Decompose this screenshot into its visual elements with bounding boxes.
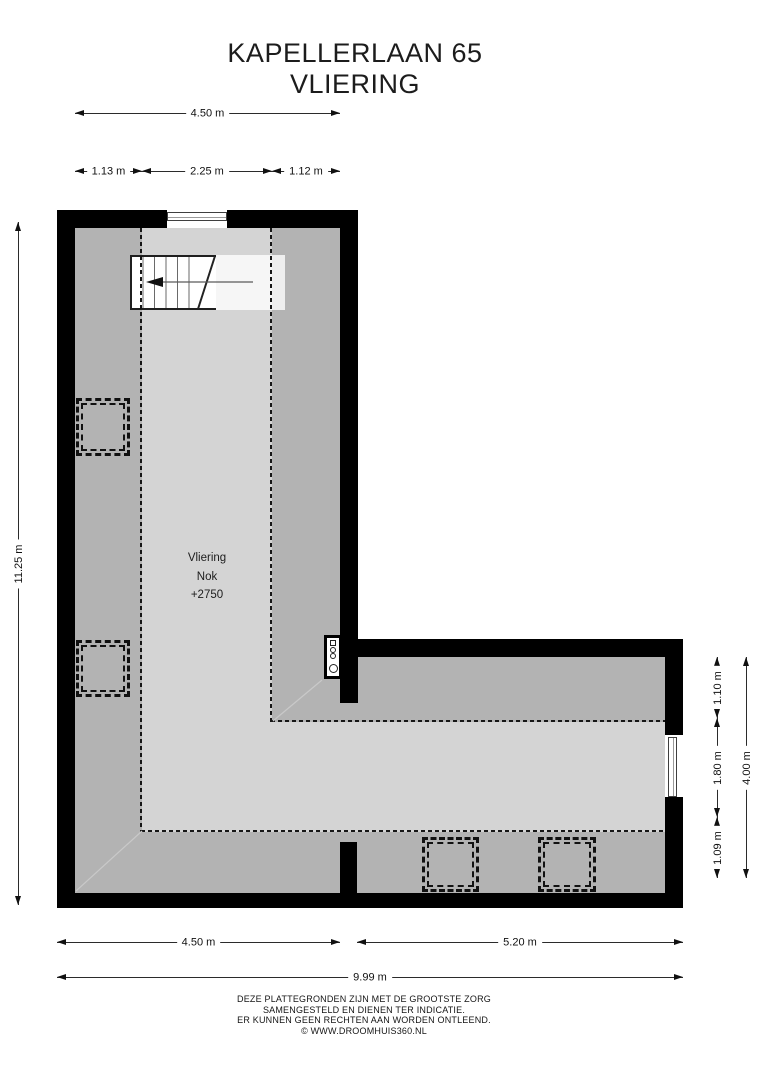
window-midline xyxy=(168,217,226,218)
wall-left xyxy=(57,210,75,908)
roof-window-icon-left-1 xyxy=(76,398,130,456)
stair-headroom-shadow xyxy=(216,255,285,310)
boiler-dial xyxy=(330,653,336,659)
roof-window-icon-left-2 xyxy=(76,640,130,697)
wall-right-lower-segment xyxy=(665,797,683,908)
dim-bottom-segment-2: 5.20 m xyxy=(357,942,683,943)
wall-middle-vertical xyxy=(340,210,358,703)
dim-top-total: 4.50 m xyxy=(75,113,340,114)
room-name: Vliering xyxy=(147,549,267,568)
headroom-dashed-line-left xyxy=(140,228,142,832)
dim-label: 1.12 m xyxy=(284,165,328,177)
title-address: KAPELLERLAAN 65 xyxy=(0,38,710,69)
disclaimer-copyright: © WWW.DROOMHUIS360.NL xyxy=(0,1026,728,1037)
dim-top-segment-2: 2.25 m xyxy=(142,171,272,172)
boiler-icon xyxy=(324,635,342,679)
floor-high-headroom-horizontal-strip xyxy=(142,722,665,832)
page-title: KAPELLERLAAN 65 VLIERING xyxy=(0,38,710,100)
floorplan-page: KAPELLERLAAN 65 VLIERING xyxy=(0,0,763,1080)
dim-label: 4.50 m xyxy=(186,107,230,119)
headroom-dashed-line-lower xyxy=(141,830,665,832)
roof-window-inner xyxy=(427,842,474,887)
window-midline xyxy=(673,738,674,796)
disclaimer: DEZE PLATTEGRONDEN ZIJN MET DE GROOTSTE … xyxy=(0,994,728,1036)
headroom-dashed-line-upper xyxy=(271,720,665,722)
dim-bottom-segment-1: 4.50 m xyxy=(57,942,340,943)
dim-right-segment-1: 1.10 m xyxy=(717,657,718,718)
wall-right-upper-segment xyxy=(665,639,683,735)
room-ridge-height: +2750 xyxy=(147,586,267,605)
dim-label: 11.25 m xyxy=(13,539,25,588)
window-icon-right xyxy=(668,737,677,797)
wall-bottom xyxy=(57,893,683,908)
roof-window-icon-bottom-1 xyxy=(422,837,479,892)
dim-top-segment-3: 1.12 m xyxy=(272,171,340,172)
disclaimer-line: SAMENGESTELD EN DIENEN TER INDICATIE. xyxy=(0,1005,728,1016)
window-icon-top xyxy=(167,212,227,221)
dim-bottom-total: 9.99 m xyxy=(57,977,683,978)
dim-label: 4.00 m xyxy=(741,746,753,790)
dim-right-total: 4.00 m xyxy=(746,657,747,878)
title-floor: VLIERING xyxy=(0,69,710,100)
dim-label: 1.09 m xyxy=(712,826,724,870)
roof-window-inner xyxy=(81,645,125,692)
dim-label: 4.50 m xyxy=(177,936,221,948)
wall-bottom-stub xyxy=(340,842,357,893)
boiler-panel xyxy=(327,638,339,676)
roof-window-icon-bottom-2 xyxy=(538,837,596,892)
stairs-icon xyxy=(130,255,216,310)
dim-left-total: 11.25 m xyxy=(18,222,19,905)
roof-window-inner xyxy=(81,403,125,451)
wall-right-leg-top xyxy=(340,639,683,657)
dim-right-segment-3: 1.09 m xyxy=(717,817,718,878)
dim-label: 9.99 m xyxy=(348,971,392,983)
boiler-pipe xyxy=(329,664,338,673)
dim-right-segment-2: 1.80 m xyxy=(717,718,718,817)
disclaimer-line: ER KUNNEN GEEN RECHTEN AAN WORDEN ONTLEE… xyxy=(0,1015,728,1026)
dim-label: 2.25 m xyxy=(185,165,229,177)
wall-top-right-segment xyxy=(227,210,358,228)
roof-window-inner xyxy=(543,842,591,887)
disclaimer-line: DEZE PLATTEGRONDEN ZIJN MET DE GROOTSTE … xyxy=(0,994,728,1005)
dim-label: 1.80 m xyxy=(712,746,724,790)
dim-top-segment-1: 1.13 m xyxy=(75,171,142,172)
dim-label: 1.10 m xyxy=(712,666,724,710)
dim-label: 1.13 m xyxy=(87,165,131,177)
room-ridge-label: Nok xyxy=(147,568,267,587)
room-label: Vliering Nok +2750 xyxy=(147,549,267,605)
boiler-switch xyxy=(330,640,336,646)
stair-treads xyxy=(132,257,200,308)
dim-label: 5.20 m xyxy=(498,936,542,948)
headroom-dashed-line-right xyxy=(270,228,272,722)
